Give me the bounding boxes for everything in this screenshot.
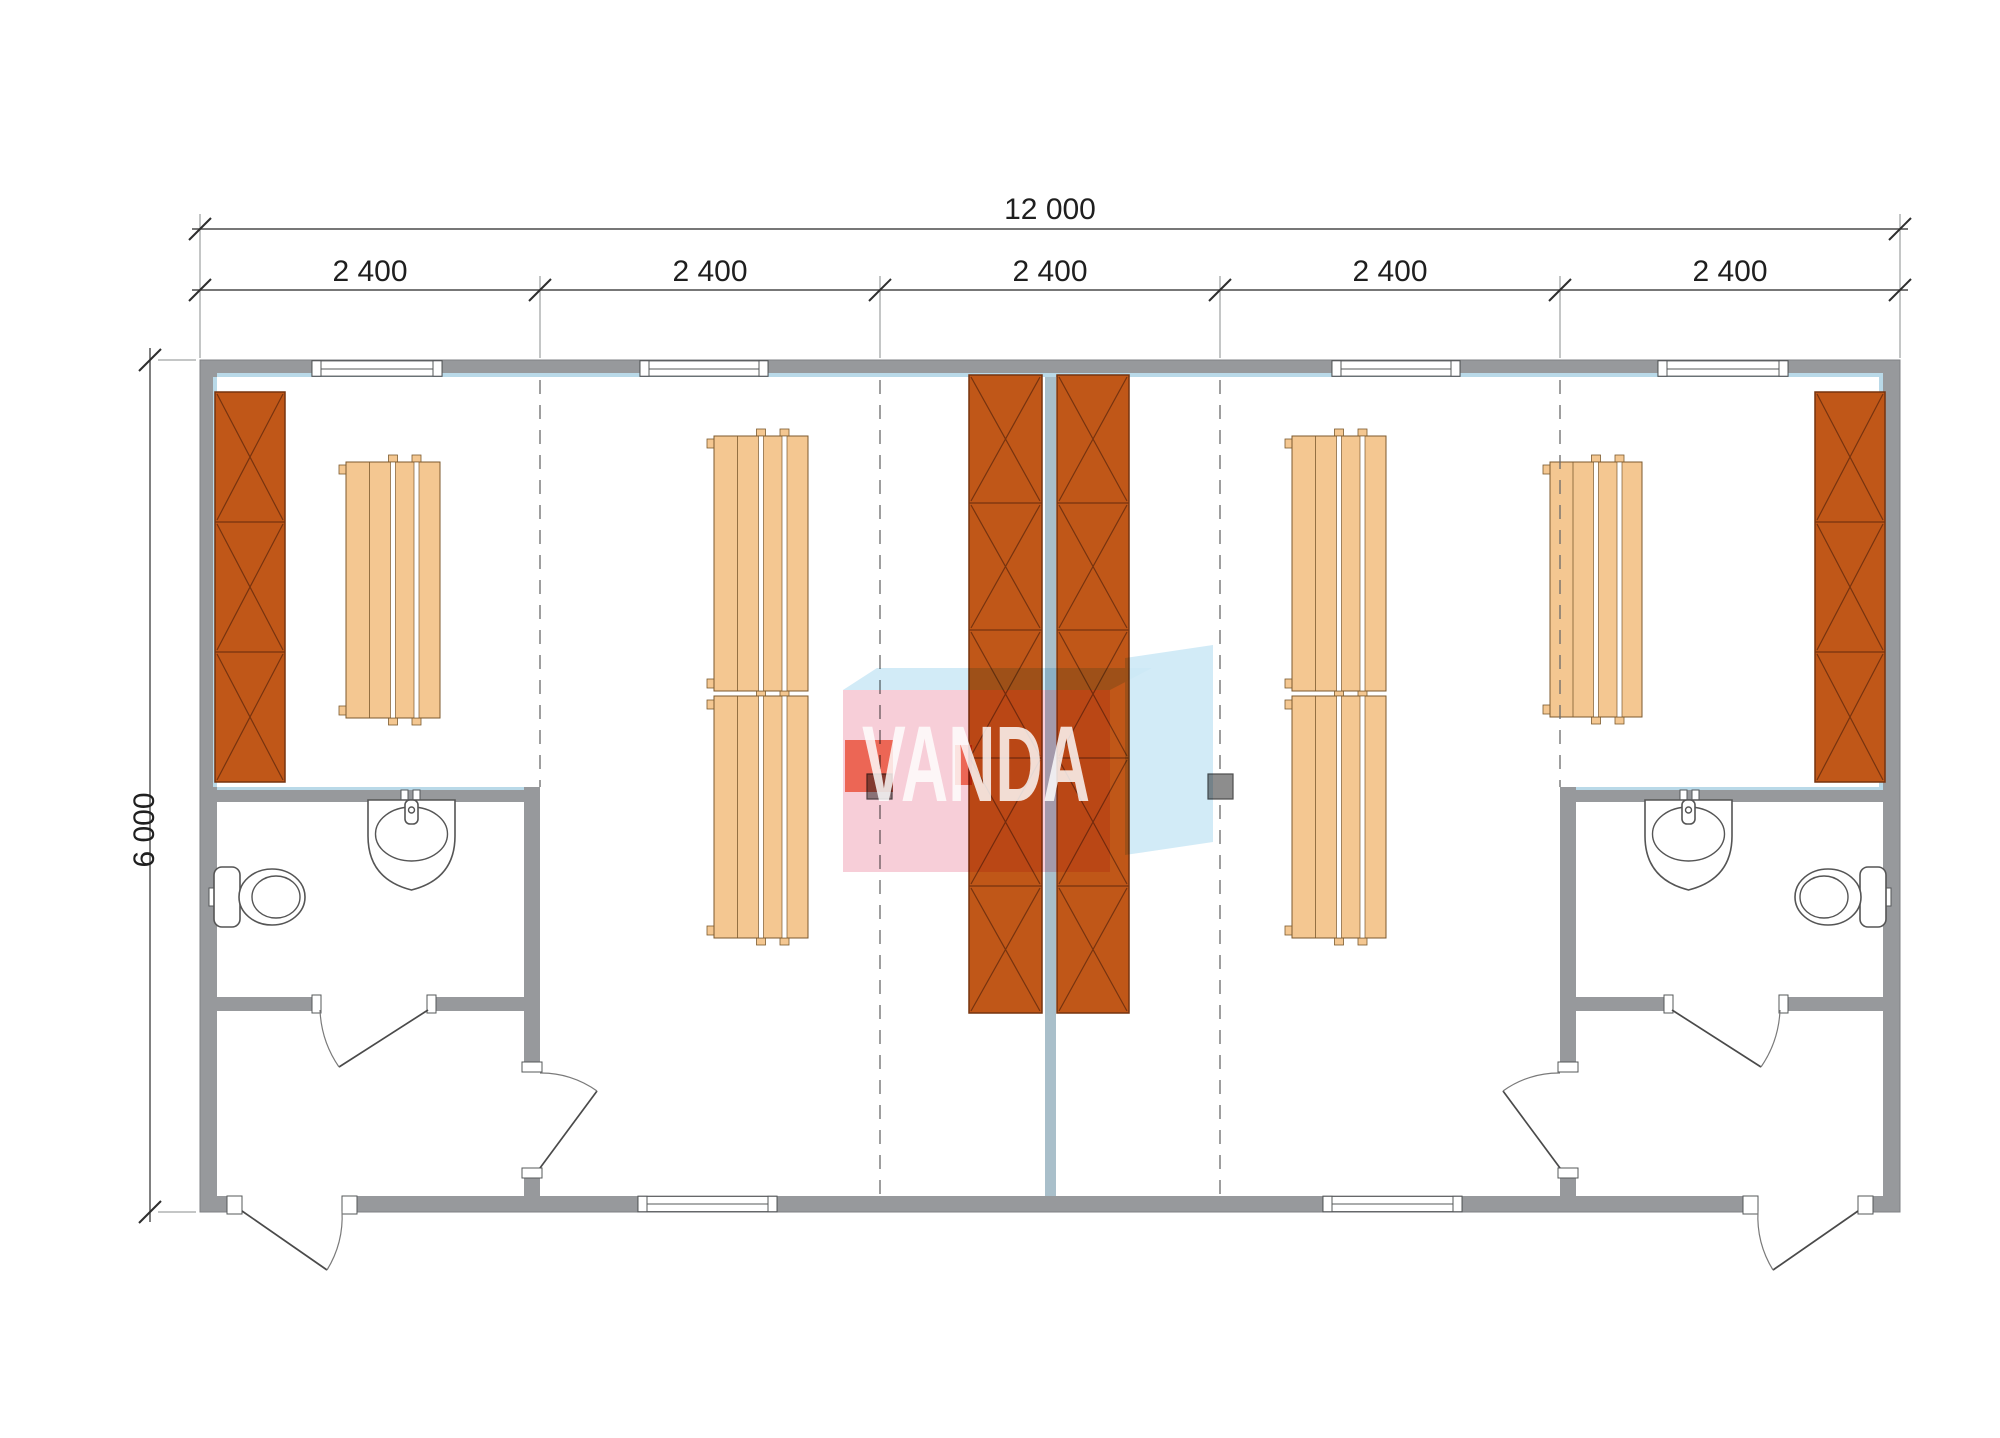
watermark-right-face	[1125, 645, 1213, 855]
door-swing-arc	[1761, 1010, 1780, 1067]
module-width-label: 2 400	[1692, 255, 1767, 288]
bench-tall-left	[707, 429, 808, 945]
toilet-tank	[1860, 867, 1886, 927]
dimension-height: 6 000	[128, 348, 196, 1223]
toilet-bowl	[239, 869, 305, 925]
wall-lining-top	[217, 373, 1883, 377]
module-width-label: 2 400	[1012, 255, 1087, 288]
sink-left	[368, 790, 455, 890]
floor-plan-page: 12 000 2 400 2 400 2 400 2 400 2 400	[0, 0, 2000, 1438]
floor-plan-drawing: 12 000 2 400 2 400 2 400 2 400 2 400	[0, 0, 2000, 1438]
toilet-bowl	[1795, 869, 1861, 925]
door-swing-arc	[327, 1211, 342, 1270]
module-width-label: 2 400	[1352, 255, 1427, 288]
toilet-tank	[214, 867, 240, 927]
toilet-left	[209, 867, 305, 927]
door-leaf	[540, 1091, 597, 1168]
exterior-wall-bottom	[200, 1196, 1900, 1212]
window	[1332, 361, 1460, 376]
window	[1658, 361, 1788, 376]
sink-faucet	[405, 800, 418, 824]
dimension-modules: 2 400 2 400 2 400 2 400 2 400	[189, 255, 1911, 358]
door-leaf	[1773, 1211, 1858, 1270]
door-leaf	[1672, 1010, 1761, 1067]
door-leaf	[339, 1010, 428, 1067]
bathroom-door-left	[312, 995, 436, 1067]
watermark-top-face	[843, 668, 1152, 690]
bathroom-door-right	[1664, 995, 1788, 1067]
bench-short-left	[339, 455, 440, 725]
wardrobe-left-wall	[215, 392, 285, 782]
sink-faucet	[1682, 800, 1695, 824]
door-swing-arc	[540, 1073, 597, 1091]
bench-short-right	[1543, 455, 1642, 724]
sink-right	[1645, 790, 1732, 890]
entrance-door-left	[227, 1195, 357, 1270]
window	[640, 361, 768, 376]
watermark-logo-text: VANDA	[862, 703, 1090, 824]
room-door-left	[522, 1062, 597, 1178]
door-swing-arc	[1503, 1073, 1560, 1091]
door-swing-arc	[320, 1010, 339, 1067]
door-swing-arc	[1758, 1211, 1773, 1270]
window	[1323, 1196, 1462, 1211]
door-leaf	[1503, 1091, 1560, 1168]
toilet-right	[1795, 867, 1891, 927]
building-height-label: 6 000	[128, 792, 161, 867]
room-door-right	[1503, 1062, 1578, 1178]
module-width-label: 2 400	[332, 255, 407, 288]
bench-tall-right	[1285, 429, 1386, 945]
door-leaf	[242, 1211, 327, 1270]
wardrobe-right-wall	[1815, 392, 1885, 782]
module-width-label: 2 400	[672, 255, 747, 288]
entrance-door-right	[1743, 1195, 1873, 1270]
window	[638, 1196, 777, 1211]
vanda-watermark: VANDA	[843, 645, 1213, 872]
window	[312, 361, 442, 376]
total-width-label: 12 000	[1004, 193, 1096, 226]
